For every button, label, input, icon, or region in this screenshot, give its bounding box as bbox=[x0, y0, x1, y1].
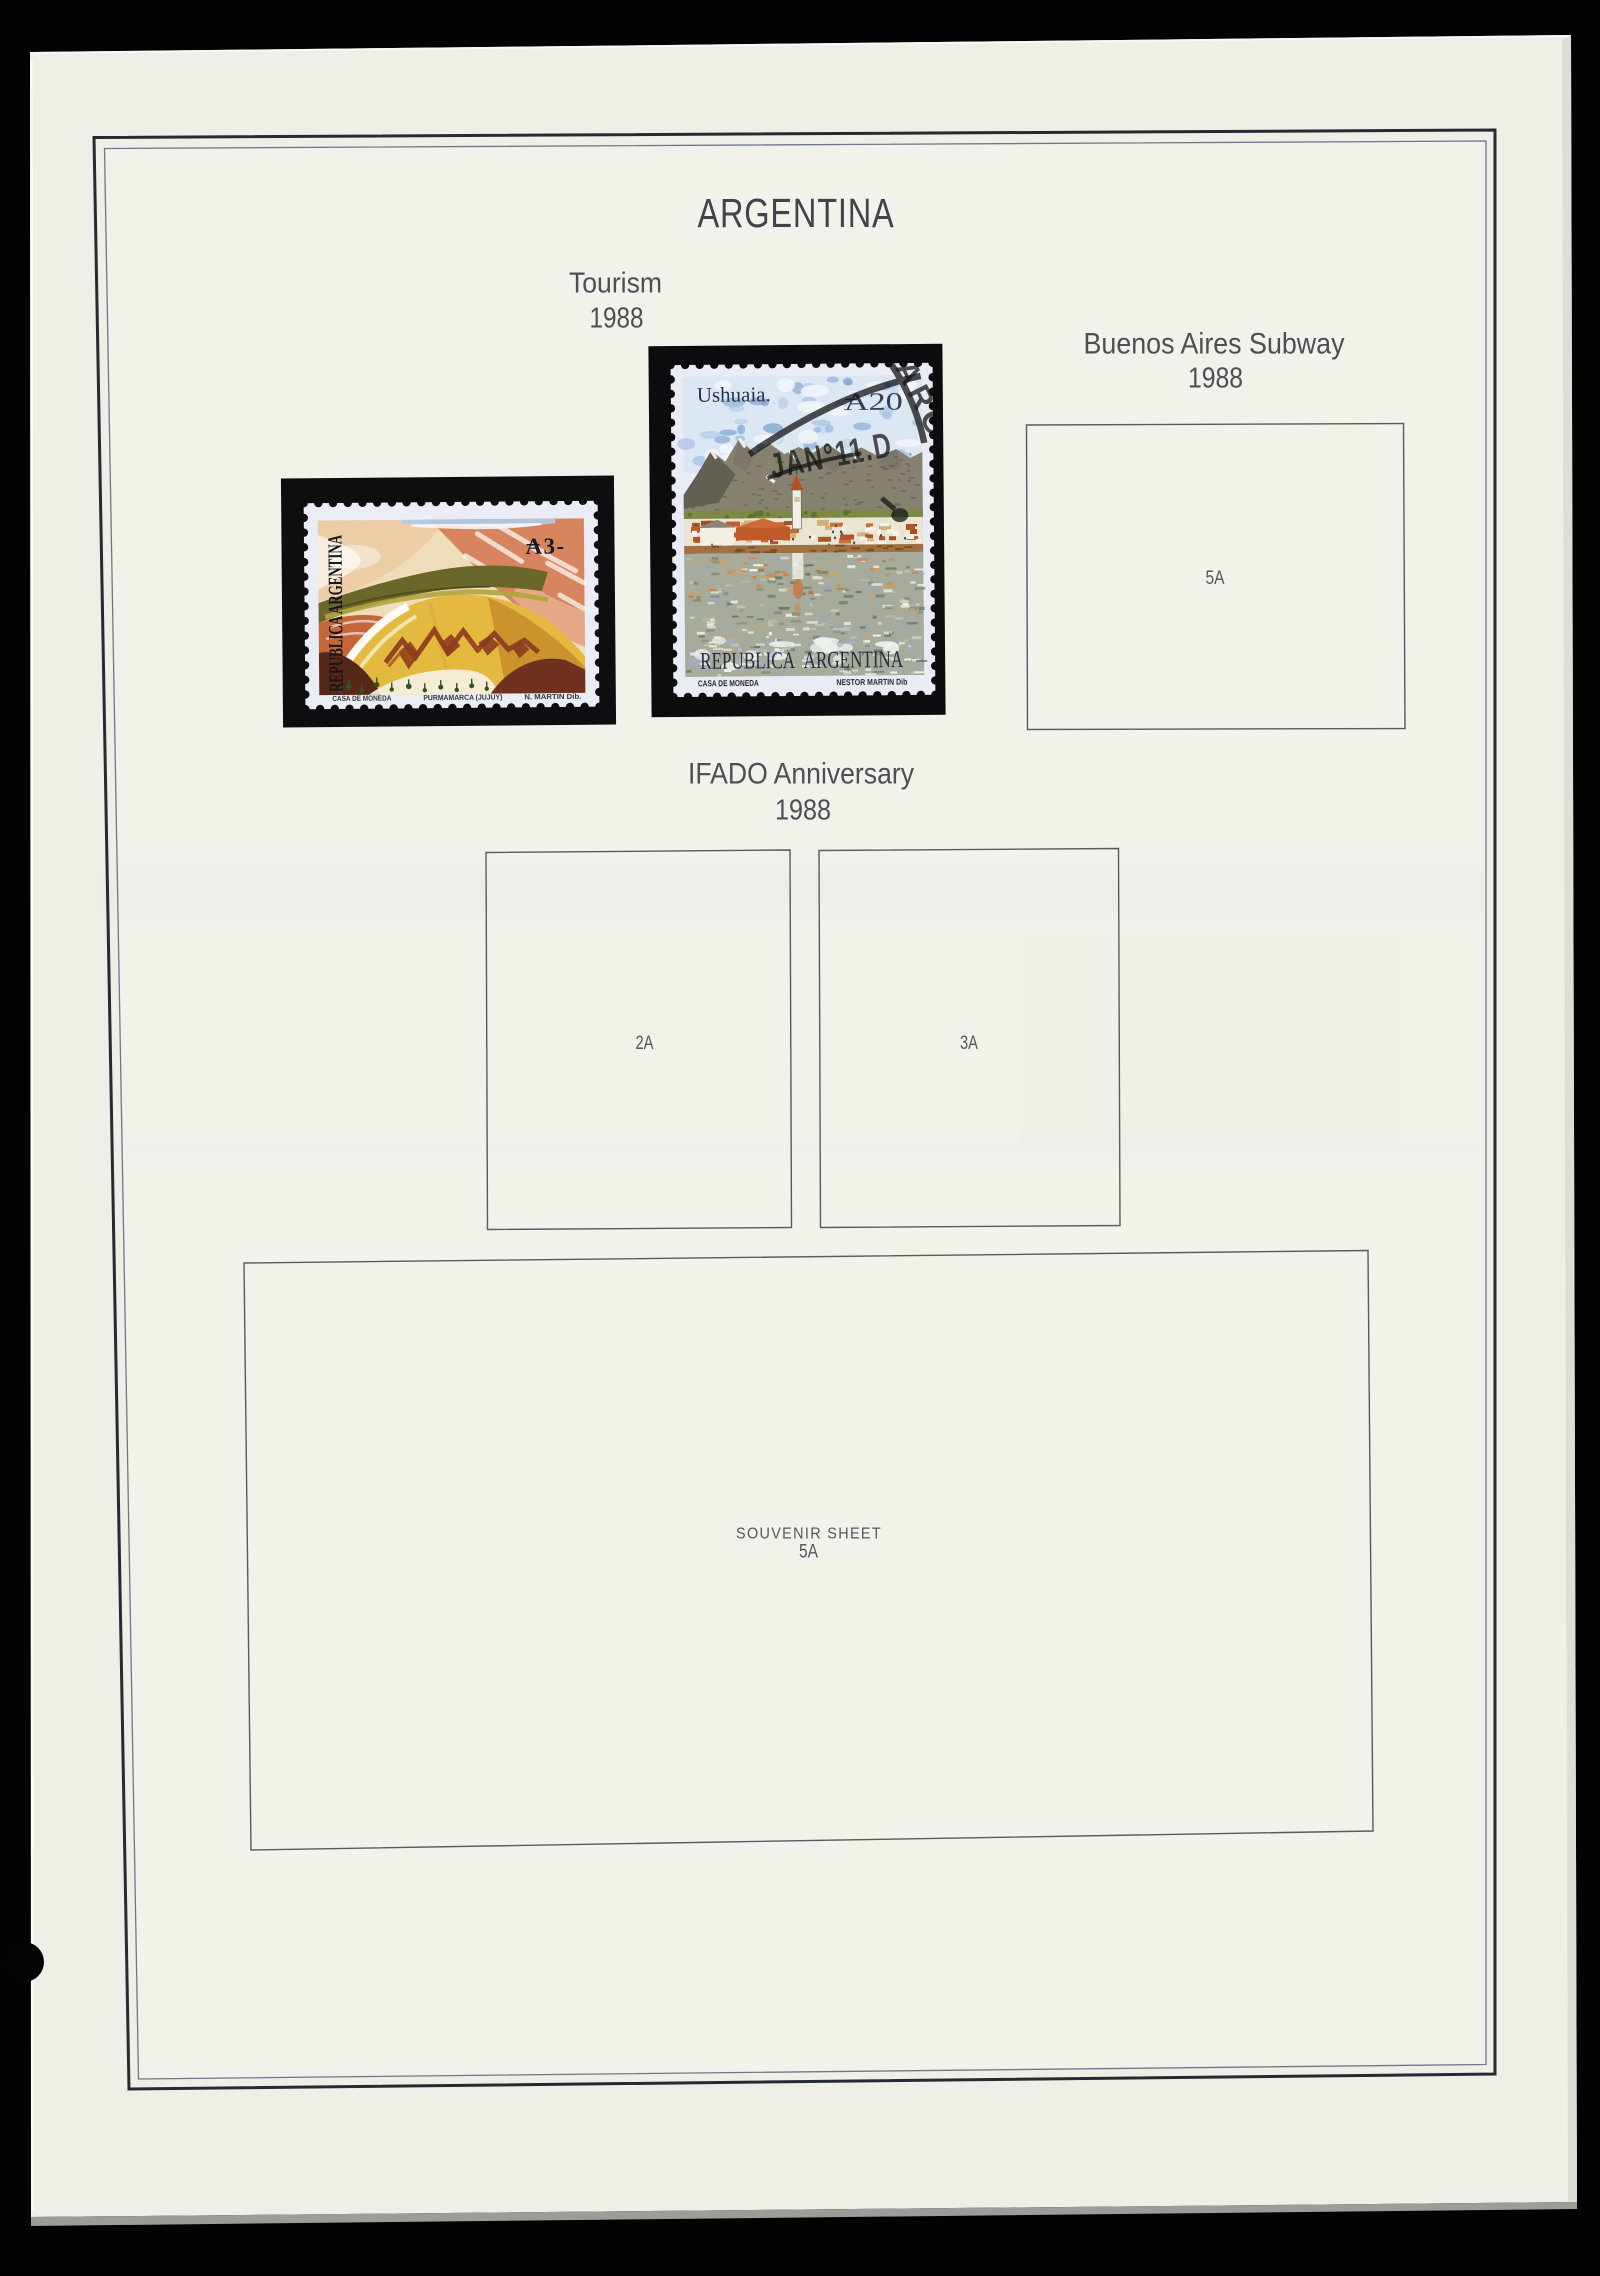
svg-text:REPUBLICA ARGENTINA: REPUBLICA ARGENTINA bbox=[700, 647, 904, 675]
svg-text:2A: 2A bbox=[636, 1033, 654, 1054]
svg-text:1988: 1988 bbox=[590, 303, 644, 335]
svg-text:PURMAMARCA (JUJUY): PURMAMARCA (JUJUY) bbox=[423, 693, 503, 703]
svg-text:IFADO Anniversary: IFADO Anniversary bbox=[688, 758, 914, 791]
svg-text:N. MARTIN Dib.: N. MARTIN Dib. bbox=[524, 692, 581, 701]
svg-text:NESTOR MARTIN Dib: NESTOR MARTIN Dib bbox=[836, 677, 907, 688]
svg-text:A20: A20 bbox=[844, 389, 903, 417]
svg-text:Tourism: Tourism bbox=[569, 268, 662, 300]
svg-text:Ushuaia.: Ushuaia. bbox=[697, 382, 771, 407]
svg-text:3A: 3A bbox=[960, 1033, 978, 1054]
svg-text:5A: 5A bbox=[1206, 568, 1225, 589]
svg-text:5A: 5A bbox=[799, 1542, 818, 1563]
svg-text:CASA DE MONEDA: CASA DE MONEDA bbox=[332, 693, 392, 703]
svg-text:CASA DE MONEDA: CASA DE MONEDA bbox=[698, 678, 759, 689]
svg-text:A3-: A3- bbox=[525, 533, 565, 558]
svg-text:Buenos Aires Subway: Buenos Aires Subway bbox=[1084, 328, 1345, 361]
svg-text:1988: 1988 bbox=[775, 795, 831, 827]
svg-text:SOUVENIR SHEET: SOUVENIR SHEET bbox=[736, 1526, 882, 1543]
svg-text:1988: 1988 bbox=[1188, 363, 1243, 395]
svg-text:REPUBLICA ARGENTINA: REPUBLICA ARGENTINA bbox=[324, 535, 347, 693]
svg-text:ARGENTINA: ARGENTINA bbox=[698, 190, 895, 236]
